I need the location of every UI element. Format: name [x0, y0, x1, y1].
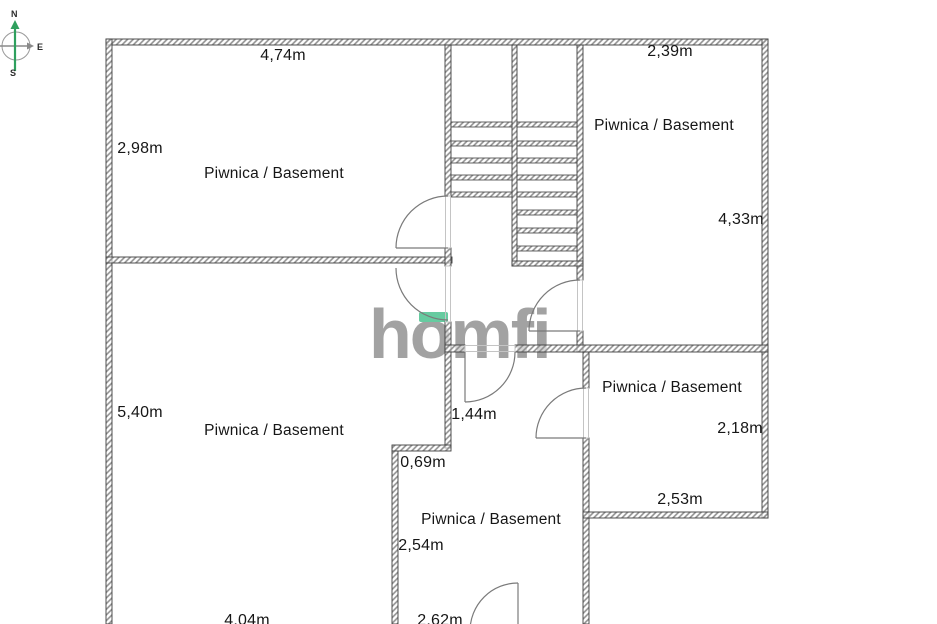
wall [583, 352, 589, 388]
door-arc-middle-right-room [536, 388, 586, 438]
stair-tread [517, 246, 577, 251]
stair-tread [451, 141, 512, 146]
wall [392, 451, 398, 624]
floor-plan: homfi [0, 0, 937, 624]
wall [577, 45, 583, 280]
wall [445, 248, 451, 266]
door-arc-top-left-room [396, 196, 448, 248]
stair-tread [451, 158, 512, 163]
door-arc-hallway [465, 352, 515, 402]
wall [762, 39, 768, 518]
stair-tread [517, 158, 577, 163]
wall [106, 39, 112, 624]
dimension-label: 1,44m [451, 406, 496, 424]
wall [392, 445, 451, 451]
stair-tread [451, 122, 512, 127]
room-label: Piwnica / Basement [594, 117, 734, 135]
dimension-label: 0,69m [400, 454, 445, 472]
wall [106, 257, 452, 263]
dimension-label: 2,62m [417, 612, 462, 624]
dimension-label: 2,39m [647, 43, 692, 61]
wall [445, 345, 465, 352]
compass-east-arrow [27, 43, 34, 50]
dimension-label: 5,40m [117, 404, 162, 422]
dimension-label: 2,98m [117, 140, 162, 158]
compass-rose: N E S [0, 9, 43, 78]
room-label: Piwnica / Basement [204, 422, 344, 440]
compass-label-south: S [10, 68, 16, 78]
compass-label-north: N [11, 9, 18, 19]
stair-tread [517, 122, 577, 127]
floor-plan-drawing: N E S [0, 0, 937, 624]
wall [445, 322, 451, 448]
stair-tread [517, 192, 577, 197]
compass-north-arrow [11, 20, 20, 29]
door-arc-bottom-room [470, 583, 518, 624]
wall [583, 438, 589, 624]
stair-tread [517, 175, 577, 180]
wall [512, 45, 517, 266]
room-label: Piwnica / Basement [602, 379, 742, 397]
stair-tread [517, 228, 577, 233]
room-label: Piwnica / Basement [204, 165, 344, 183]
door-arc-stairwell [529, 280, 580, 331]
stair-tread [517, 210, 577, 215]
dimension-label: 2,18m [717, 420, 762, 438]
dimension-label: 4,04m [224, 612, 269, 624]
wall [512, 261, 583, 266]
room-label: Piwnica / Basement [421, 511, 561, 529]
dimension-label: 4,74m [260, 47, 305, 65]
dimension-label: 2,53m [657, 491, 702, 509]
wall [583, 512, 768, 518]
stair-tread [451, 192, 512, 197]
dimension-label: 2,54m [398, 537, 443, 555]
wall [515, 345, 768, 352]
stair-tread [517, 141, 577, 146]
wall [445, 45, 451, 196]
stair-tread [451, 175, 512, 180]
dimension-label: 4,33m [718, 211, 763, 229]
compass-label-east: E [37, 42, 43, 52]
door-arc-left-room [396, 268, 448, 320]
